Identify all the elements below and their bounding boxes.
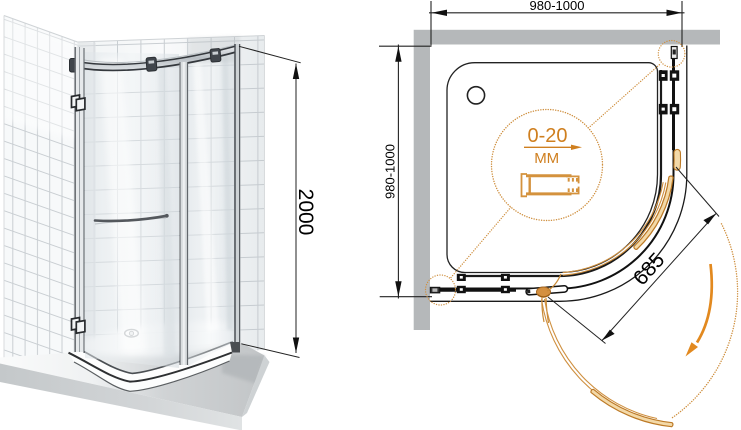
svg-text:ММ: ММ (534, 150, 559, 167)
svg-text:0-20: 0-20 (527, 125, 567, 147)
svg-text:980-1000: 980-1000 (383, 144, 398, 199)
svg-text:2000: 2000 (294, 189, 317, 236)
svg-text:685: 685 (629, 249, 670, 290)
svg-text:980-1000: 980-1000 (530, 0, 585, 13)
